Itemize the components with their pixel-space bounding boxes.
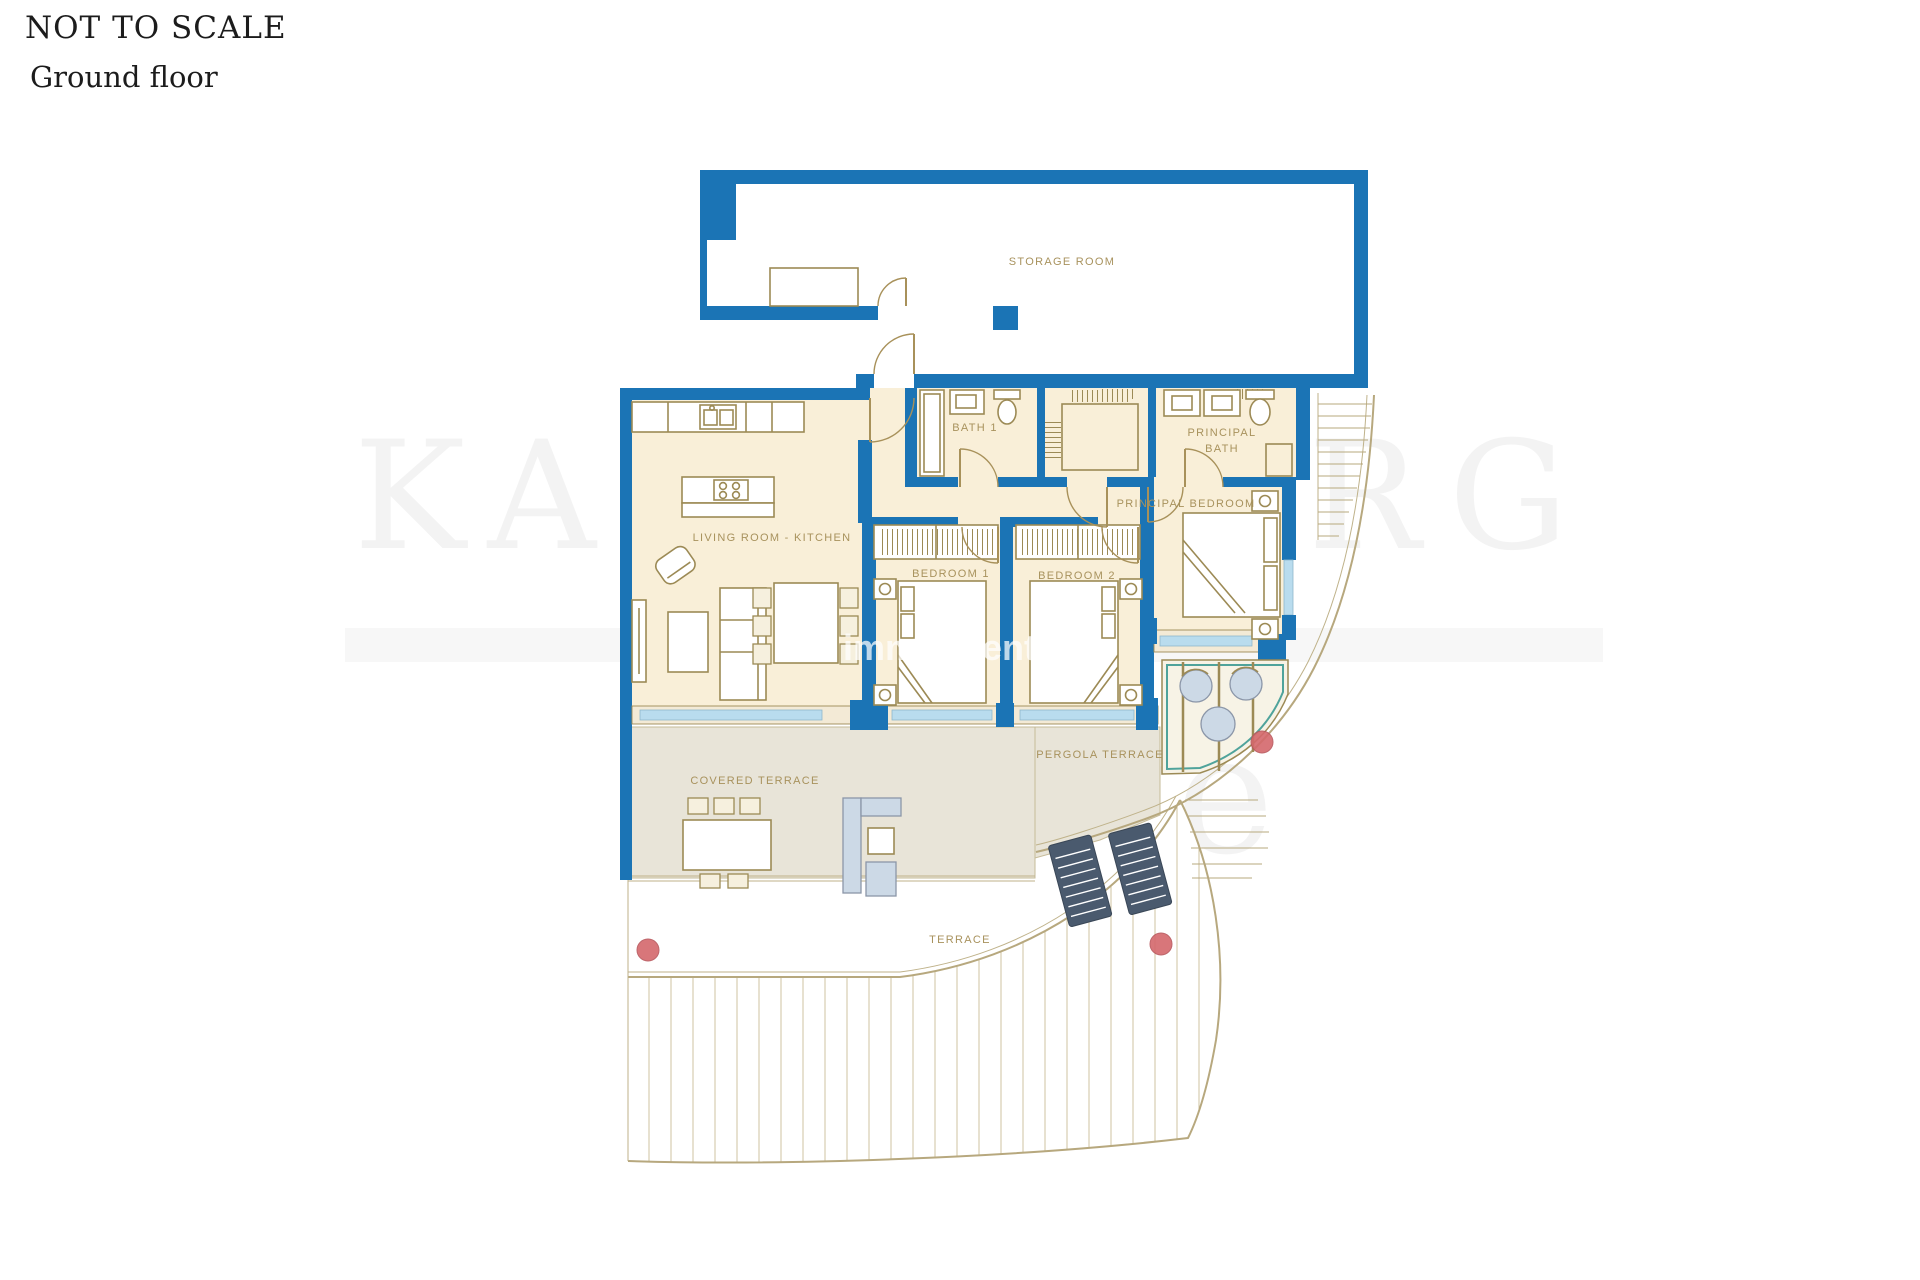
room-label-storage: STORAGE ROOM [1009,256,1115,268]
nightstand [874,685,896,705]
sink [1204,390,1240,416]
room-label-covered-terrace: COVERED TERRACE [690,775,819,787]
pillar [993,306,1018,330]
room-label-pergola-terrace: PERGOLA TERRACE [1036,749,1164,761]
watermark-overlay: immo ment.e [843,627,1066,668]
outdoor-chair [1180,670,1212,702]
nightstand [1252,491,1278,511]
page: NOT TO SCALE Ground floor KAARSBERG Esta… [0,0,1920,1280]
room-label-bedroom2: BEDROOM 2 [1038,570,1116,582]
outdoor-chair [1230,668,1262,700]
nightstand [874,579,896,599]
room-label-principal-bath-2: BATH [1205,443,1239,455]
storage-closet [770,268,858,306]
sink [1164,390,1200,416]
floor-plan-svg: KAARSBERG Estate [0,0,1920,1280]
coffee-table [668,612,708,672]
side-table [868,828,894,854]
plant [1150,933,1172,955]
toilet [1246,390,1274,399]
room-label-principal-bedroom: PRINCIPAL BEDROOM [1117,498,1256,510]
kitchen-island [682,477,774,503]
plant [637,939,659,961]
storage-room: STORAGE ROOM [700,170,1368,388]
closet-rail [1045,418,1061,462]
lounge-chair [866,862,896,896]
lounge-sofa [843,798,861,893]
outdoor-table [1201,707,1235,741]
nightstand [1120,579,1142,599]
sink [950,390,984,414]
room-label-principal-bath-1: PRINCIPAL [1188,427,1257,439]
toilet [994,390,1020,399]
watermark-overlay-right: ment.e [950,627,1066,668]
watermark-overlay-left: immo [843,627,939,668]
plant [1251,731,1273,753]
bed [1183,513,1280,617]
room-label-bedroom1: BEDROOM 1 [912,568,990,580]
room-label-living: LIVING ROOM - KITCHEN [693,532,852,544]
nightstand [1252,619,1278,639]
nightstand [1120,685,1142,705]
room-label-terrace: TERRACE [929,934,991,946]
dining-table [774,583,838,663]
closet-rail [1072,390,1130,402]
outdoor-dining-table [683,820,771,870]
room-label-bath1: BATH 1 [952,422,998,434]
